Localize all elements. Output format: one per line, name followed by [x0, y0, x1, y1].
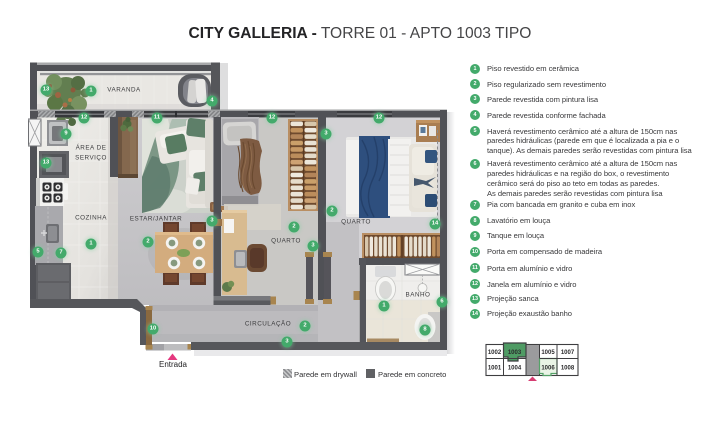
svg-text:1007: 1007 [561, 350, 575, 356]
svg-text:1006: 1006 [541, 366, 555, 372]
svg-text:1004: 1004 [508, 366, 522, 372]
svg-text:1001: 1001 [488, 366, 502, 372]
svg-text:1003: 1003 [508, 350, 522, 356]
svg-text:1002: 1002 [488, 350, 502, 356]
svg-text:1008: 1008 [561, 366, 575, 372]
svg-text:1005: 1005 [541, 350, 555, 356]
